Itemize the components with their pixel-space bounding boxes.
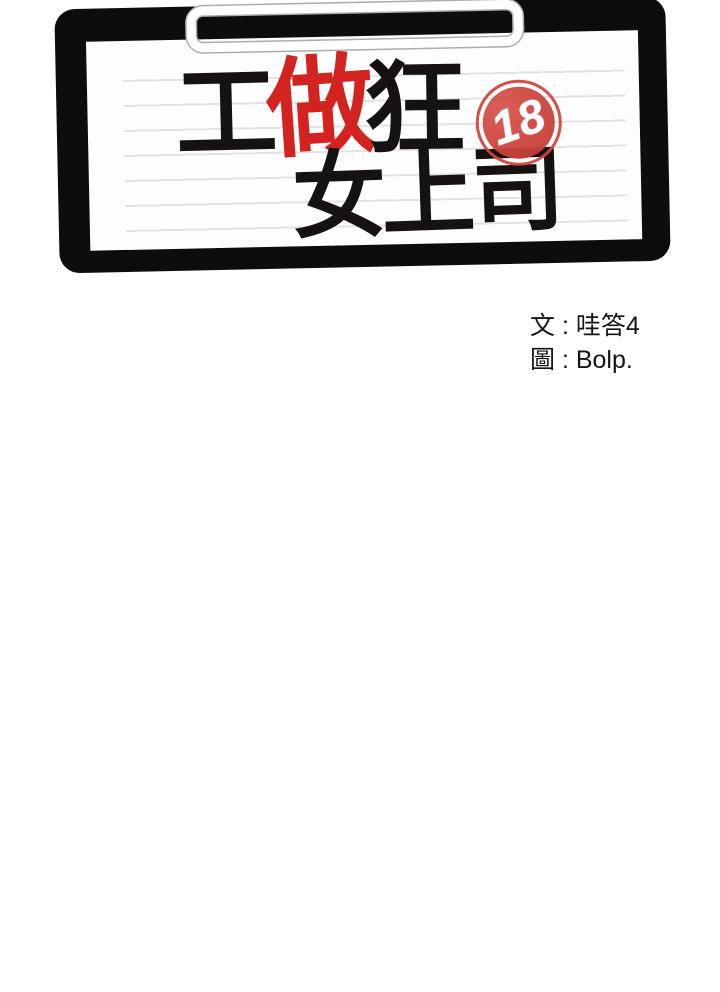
title-char-1: 工 [174, 61, 270, 165]
credit-writer-line: 文 : 哇答4 [530, 309, 640, 343]
clipboard-paper: 工做狂 女上司 18 [86, 30, 642, 251]
age-rating-text: 18 [483, 86, 552, 156]
clipboard-clip-icon [184, 0, 525, 55]
comic-title-page: 工做狂 女上司 18 文 : 哇答4 圖 : Bolp. [0, 0, 720, 992]
credits: 文 : 哇答4 圖 : Bolp. [530, 309, 640, 377]
clipboard: 工做狂 女上司 18 [54, 0, 670, 273]
credit-artist-line: 圖 : Bolp. [530, 343, 640, 377]
